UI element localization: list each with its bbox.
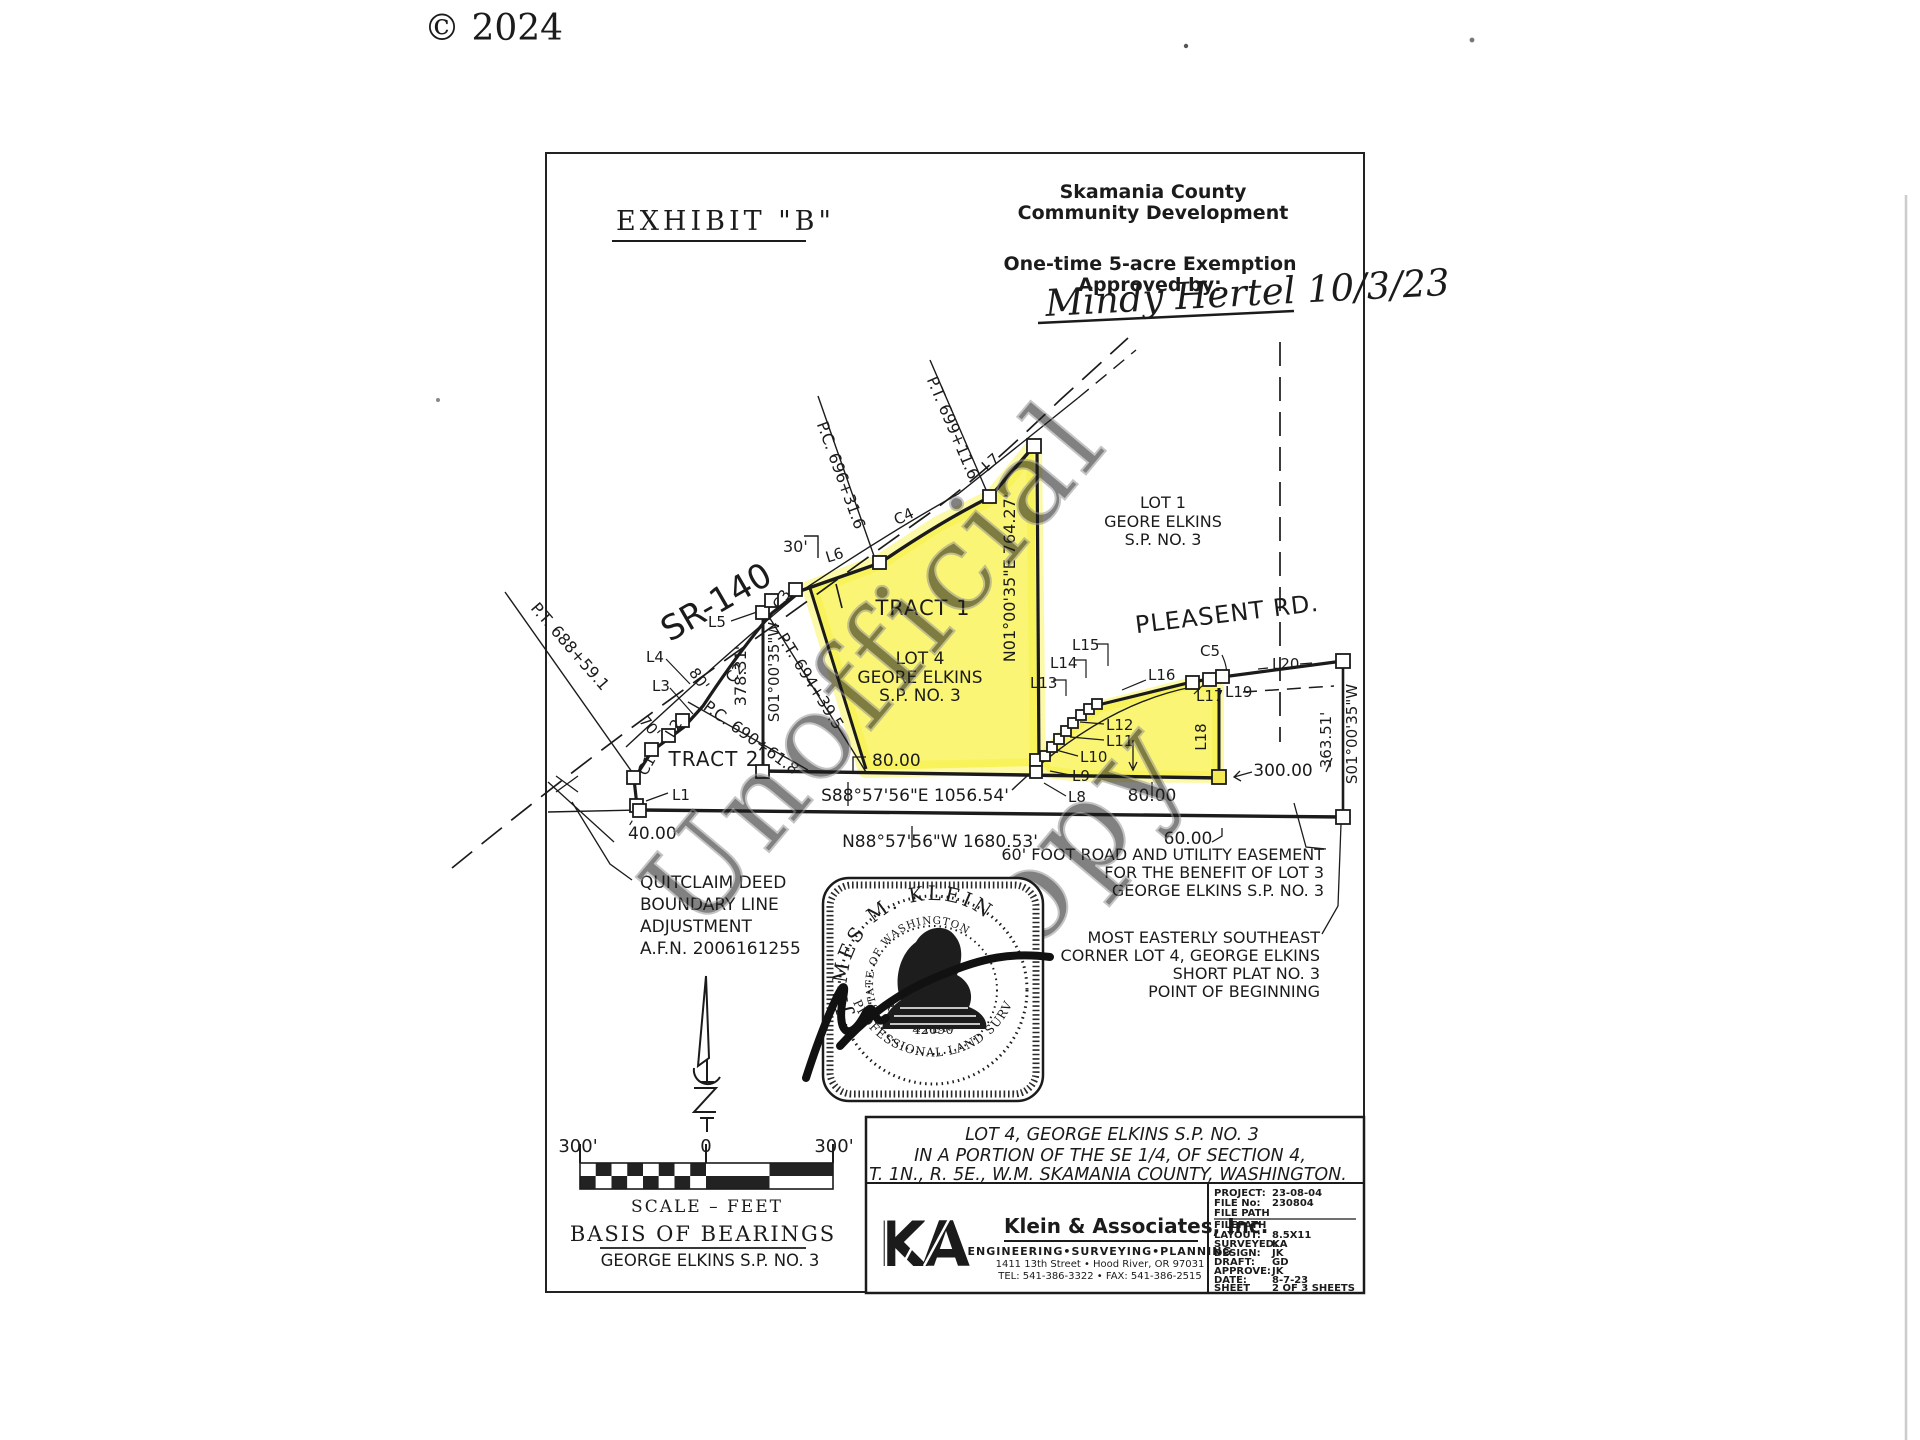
basis-of-bearings-title: BASIS OF BEARINGS [570, 1222, 836, 1246]
info-label-2: FILE PATH [1214, 1208, 1270, 1219]
lot1-line3: S.P. NO. 3 [1125, 530, 1202, 549]
label-l13: L13 [1030, 674, 1057, 692]
firm-address: 1411 13th Street • Hood River, OR 97031 [996, 1259, 1205, 1270]
label-l20: L20 [1272, 655, 1299, 673]
bearing-right-line: S01°00'35"W [1343, 684, 1361, 784]
info-value-10: 2 OF 3 SHEETS [1272, 1283, 1355, 1294]
lot1-line1: LOT 1 [1140, 493, 1186, 512]
label-l18: L18 [1192, 723, 1210, 750]
sheet-title-line2: IN A PORTION OF THE SE 1/4, OF SECTION 4… [914, 1146, 1306, 1166]
scale-left-label: 300' [558, 1136, 597, 1157]
scan-speck [436, 398, 440, 402]
label-l5: L5 [708, 613, 726, 631]
firm-services: ENGINEERING•SURVEYING•PLANNING [968, 1245, 1233, 1258]
pob-line1: MOST EASTERLY SOUTHEAST [1087, 928, 1320, 947]
scan-speck [1470, 38, 1475, 43]
firm-phone: TEL: 541-386-3322 • FAX: 541-386-2515 [997, 1271, 1202, 1282]
label-l4: L4 [646, 648, 664, 666]
sheet-title-line1: LOT 4, GEORGE ELKINS S.P. NO. 3 [965, 1125, 1259, 1145]
info-label-10: SHEET [1214, 1283, 1250, 1294]
scan-speck [1184, 44, 1188, 48]
scale-caption: SCALE – FEET [631, 1197, 783, 1217]
dim-30: 30' [783, 537, 808, 556]
basis-of-bearings-value: GEORGE ELKINS S.P. NO. 3 [601, 1251, 820, 1270]
label-c5: C5 [1200, 642, 1220, 660]
exhibit-title: EXHIBIT "B" [616, 206, 835, 237]
scale-bar-cells [580, 1163, 833, 1189]
easement-line3: GEORGE ELKINS S.P. NO. 3 [1112, 881, 1324, 900]
county-name: Skamania County [1060, 181, 1247, 203]
title-block: LOT 4, GEORGE ELKINS S.P. NO. 3 IN A POR… [866, 1117, 1364, 1294]
scanned-survey-page: { "page": { "copyright": "© 2024" }, "he… [0, 0, 1920, 1440]
label-l16: L16 [1148, 666, 1175, 684]
dist-363: 363.51' [1317, 712, 1335, 769]
pob-line2: CORNER LOT 4, GEORGE ELKINS [1061, 946, 1320, 965]
info-value-1: 230804 [1272, 1198, 1314, 1209]
dim-300: 300.00 [1253, 761, 1312, 781]
pob-line3: SHORT PLAT NO. 3 [1173, 964, 1320, 983]
label-l14: L14 [1050, 654, 1077, 672]
label-l3: L3 [652, 677, 670, 695]
lot1-line2: GEORE ELKINS [1104, 512, 1222, 531]
survey-plat-svg: © 2024 EXHIBIT "B" Skamania County Commu… [0, 0, 1920, 1440]
copyright-watermark: © 2024 [424, 8, 563, 49]
ka-logo: KA [878, 1208, 970, 1281]
county-dept: Community Development [1018, 202, 1289, 224]
label-l15: L15 [1072, 636, 1099, 654]
label-l17: L17 [1196, 687, 1223, 705]
label-l19: L19 [1225, 683, 1252, 701]
pob-line4: POINT OF BEGINNING [1148, 982, 1320, 1001]
ka-logo-text: KA [878, 1208, 970, 1281]
sheet-title-line3: T. 1N., R. 5E., W.M. SKAMANIA COUNTY, WA… [869, 1165, 1347, 1185]
